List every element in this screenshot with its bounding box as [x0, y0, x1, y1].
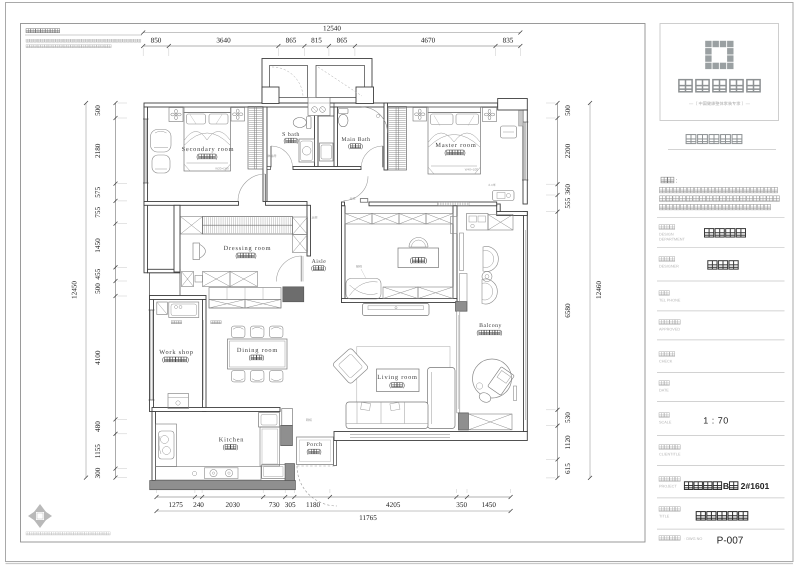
svg-text:淋浴房: 淋浴房 [267, 154, 276, 158]
svg-text:Living room: Living room [377, 374, 417, 381]
svg-text:240: 240 [193, 501, 204, 509]
svg-text:(: ( [477, 330, 479, 337]
svg-text:): ) [187, 357, 189, 364]
svg-text:1120: 1120 [564, 435, 572, 450]
svg-text:4205: 4205 [386, 501, 401, 509]
svg-text:2180: 2180 [94, 143, 102, 158]
svg-text:): ) [324, 265, 326, 272]
svg-text:(: ( [235, 253, 237, 260]
svg-text:): ) [297, 138, 299, 145]
svg-text:PROJECT: PROJECT [659, 485, 677, 489]
svg-text:500: 500 [564, 105, 572, 116]
svg-text:305: 305 [285, 501, 296, 509]
svg-text:1450: 1450 [94, 238, 102, 253]
svg-text:(: ( [311, 265, 313, 272]
svg-text:Dining room: Dining room [237, 347, 278, 354]
svg-text:Porch: Porch [306, 441, 322, 448]
svg-text:755: 755 [94, 207, 102, 218]
svg-text:850: 850 [151, 37, 162, 45]
svg-text:): ) [464, 150, 466, 157]
svg-text:): ) [361, 143, 363, 150]
svg-text:(: ( [306, 449, 308, 456]
svg-text:DESIGNER: DESIGNER [659, 265, 679, 269]
svg-text:(: ( [283, 138, 285, 145]
svg-text:Master room: Master room [435, 142, 476, 149]
svg-text:(: ( [223, 444, 225, 451]
svg-text:TITLE: TITLE [659, 515, 670, 519]
svg-text:12540: 12540 [323, 24, 341, 32]
svg-text:(: ( [389, 382, 391, 389]
svg-text:): ) [425, 258, 427, 265]
svg-text:鞋柜: 鞋柜 [306, 418, 312, 422]
svg-text:2030: 2030 [226, 501, 241, 509]
svg-text:(: ( [249, 355, 251, 362]
svg-text:): ) [262, 355, 264, 362]
svg-text:(: ( [348, 143, 350, 150]
svg-text:1180: 1180 [306, 501, 321, 509]
svg-text:500: 500 [94, 105, 102, 116]
svg-text:): ) [403, 382, 405, 389]
svg-text:S bath: S bath [282, 131, 300, 138]
svg-text:575: 575 [94, 187, 102, 198]
svg-text:· DWG NO: · DWG NO [684, 537, 702, 541]
svg-text:W20×D60: W20×D60 [215, 167, 229, 171]
svg-text:12460: 12460 [595, 281, 603, 299]
svg-text:—〔 中国健康整体家装专家 〕—: —〔 中国健康整体家装专家 〕— [689, 101, 751, 106]
svg-text:CHECK: CHECK [659, 360, 673, 364]
svg-text:500: 500 [94, 283, 102, 294]
svg-text:APPROVED: APPROVED [659, 328, 680, 332]
svg-text:865: 865 [286, 37, 297, 45]
svg-text:): ) [320, 449, 322, 456]
svg-text:455: 455 [94, 268, 102, 279]
svg-text:815: 815 [311, 37, 322, 45]
svg-text:12450: 12450 [71, 281, 79, 299]
svg-text:): ) [255, 253, 257, 260]
svg-text:DESIGN: DESIGN [659, 233, 674, 237]
svg-text:530: 530 [564, 412, 572, 423]
svg-text:1155: 1155 [94, 444, 102, 459]
svg-text:2200: 2200 [564, 143, 572, 158]
svg-text:SCALE: SCALE [659, 421, 672, 425]
svg-text:300: 300 [94, 467, 102, 478]
svg-text:Dressing room: Dressing room [224, 245, 272, 252]
svg-text:3640: 3640 [216, 37, 231, 45]
svg-text:P-007: P-007 [717, 535, 744, 546]
svg-text:1450: 1450 [482, 501, 497, 509]
svg-text:2.4米: 2.4米 [488, 183, 495, 187]
svg-text:1 : 70: 1 : 70 [703, 416, 729, 426]
svg-text:): ) [216, 154, 218, 161]
svg-text:4100: 4100 [94, 350, 102, 365]
svg-text:Secondary room: Secondary room [182, 146, 235, 153]
svg-text:Aisle: Aisle [312, 258, 327, 265]
svg-text:): ) [501, 330, 503, 337]
svg-text:): ) [236, 444, 238, 451]
svg-text:(: ( [196, 154, 198, 161]
svg-text:(: ( [162, 357, 164, 364]
svg-text:Balcony: Balcony [479, 322, 502, 329]
svg-text:4670: 4670 [421, 37, 436, 45]
svg-text:360: 360 [564, 184, 572, 195]
svg-text:B: B [723, 481, 729, 491]
svg-text:DATE: DATE [659, 389, 669, 393]
svg-text:1275: 1275 [169, 501, 184, 509]
svg-text:Kitchen: Kitchen [219, 437, 245, 444]
svg-text:6580: 6580 [564, 303, 572, 318]
svg-text:350: 350 [456, 501, 467, 509]
svg-text:躺椅: 躺椅 [356, 265, 362, 269]
svg-text:730: 730 [269, 501, 280, 509]
svg-text:865: 865 [337, 37, 348, 45]
svg-text:615: 615 [564, 463, 572, 474]
svg-text:DEPARTMENT: DEPARTMENT [659, 238, 685, 242]
svg-text:Work shop: Work shop [159, 349, 194, 356]
svg-text:W40×D20: W40×D20 [465, 168, 479, 172]
svg-text:2#1601: 2#1601 [741, 481, 770, 491]
svg-text::: : [676, 178, 678, 185]
svg-text:555: 555 [564, 197, 572, 208]
svg-text:11765: 11765 [359, 514, 377, 522]
svg-text:走廊: 走廊 [311, 216, 317, 220]
svg-text:835: 835 [503, 37, 514, 45]
svg-text:CL/ENTITLE: CL/ENTITLE [659, 453, 681, 457]
svg-text:480: 480 [94, 421, 102, 432]
svg-text:TEL PHONE: TEL PHONE [659, 299, 681, 303]
svg-text:(: ( [444, 150, 446, 157]
svg-text:Main Bath: Main Bath [341, 136, 370, 143]
svg-text:走道: 走道 [349, 197, 355, 201]
